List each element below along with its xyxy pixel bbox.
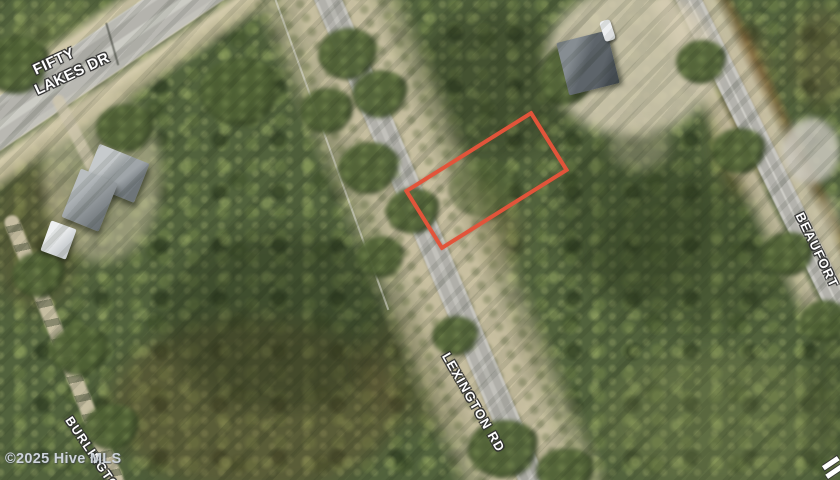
canopy-blob [352, 70, 410, 118]
tone-patch [600, 350, 840, 480]
yard-clearing [610, 125, 670, 170]
aerial-photo: FIFTY LAKES DR LEXINGTON RD BEAUFORT BUR… [0, 0, 840, 480]
canopy-blob [676, 40, 728, 84]
canopy-blob [50, 326, 112, 376]
concrete-pad [782, 118, 840, 184]
canopy-blob [338, 142, 402, 194]
canopy-blob [300, 88, 356, 134]
canopy-blob [356, 236, 406, 278]
yard-clearing [816, 196, 840, 244]
watermark: ©2025 Hive MLS [5, 451, 121, 467]
canopy-blob [200, 58, 284, 126]
canopy-blob [96, 104, 158, 152]
canopy-blob [432, 316, 480, 356]
canopy-blob [12, 252, 68, 298]
canopy-blob [712, 128, 768, 174]
